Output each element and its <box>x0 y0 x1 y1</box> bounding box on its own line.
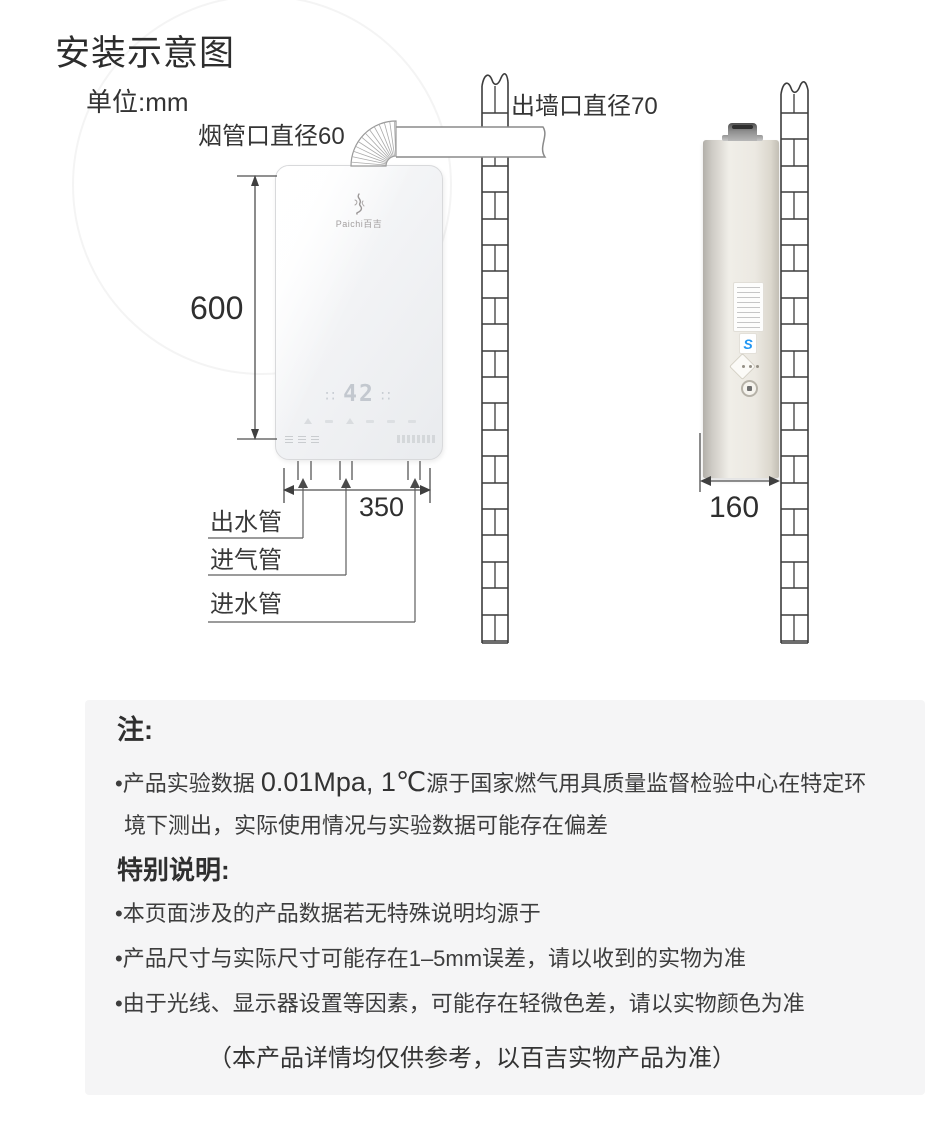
brand-logo: Paichi百吉 <box>276 192 442 230</box>
note-line-1-prefix: •产品实验数据 <box>115 771 261 796</box>
wall-outlet-diameter-label: 出墙口直径70 <box>511 92 658 122</box>
special-note-item: •产品尺寸与实际尺寸可能存在1–5mm误差，请以收到的实物为准 <box>115 945 746 973</box>
up-arrow-icon <box>304 418 312 424</box>
notes-panel <box>85 700 925 1095</box>
note-title: 注: <box>117 714 153 748</box>
side-knob <box>741 380 758 397</box>
gas-inlet-pipe-label: 进气管 <box>210 546 282 576</box>
flue-diameter-label: 烟管口直径60 <box>198 122 345 152</box>
flue-collar <box>728 123 757 141</box>
energy-badge: S <box>739 333 757 354</box>
product-detail-page: 安装示意图 单位:mm 烟管口直径60 出墙口直径70 600 350 160 … <box>0 0 950 1135</box>
water-heater-side-view: S <box>703 140 779 478</box>
display-temperature-value: 42 <box>343 381 375 407</box>
height-dimension: 600 <box>190 288 243 328</box>
note-line-1: •产品实验数据 0.01Mpa, 1℃源于国家燃气用具质量监督检验中心在特定环 <box>115 766 866 800</box>
note-line-2: 境下测出，实际使用情况与实验数据可能存在偏差 <box>124 812 608 840</box>
diamond-dots <box>736 365 764 368</box>
depth-dimension: 160 <box>709 489 759 527</box>
disclaimer-footer: （本产品详情均仅供参考，以百吉实物产品为准） <box>208 1044 736 1074</box>
note-line-1-values: 0.01Mpa, 1℃ <box>261 767 426 797</box>
display-dots-left: ∷ <box>325 388 337 405</box>
up-arrow-icon <box>346 418 354 424</box>
width-dimension: 350 <box>359 491 404 525</box>
outlet-pipe-label: 出水管 <box>210 508 282 538</box>
touch-controls-row <box>304 418 416 424</box>
special-notes-title: 特别说明: <box>117 854 230 887</box>
control-bar-icon <box>387 420 395 423</box>
flame-logo-icon <box>349 192 369 216</box>
water-inlet-pipe-label: 进水管 <box>210 590 282 620</box>
unit-label: 单位:mm <box>86 86 189 119</box>
special-note-item: •本页面涉及的产品数据若无特殊说明均源于 <box>115 900 541 928</box>
temperature-display: ∷ 42 ∷ <box>276 381 442 407</box>
page-title: 安装示意图 <box>55 32 235 76</box>
model-text-block <box>397 435 435 443</box>
control-bar-icon <box>408 420 416 423</box>
water-heater-front-view: Paichi百吉 ∷ 42 ∷ <box>275 165 443 460</box>
note-line-1-suffix: 源于国家燃气用具质量监督检验中心在特定环 <box>426 771 866 796</box>
status-icons <box>285 434 319 443</box>
control-bar-icon <box>325 420 333 423</box>
special-note-item: •由于光线、显示器设置等因素，可能存在轻微色差，请以实物颜色为准 <box>115 990 805 1018</box>
display-dots-right: ∷ <box>381 388 393 405</box>
spec-sticker <box>733 282 764 332</box>
brand-text: Paichi百吉 <box>276 217 442 230</box>
control-bar-icon <box>366 420 374 423</box>
